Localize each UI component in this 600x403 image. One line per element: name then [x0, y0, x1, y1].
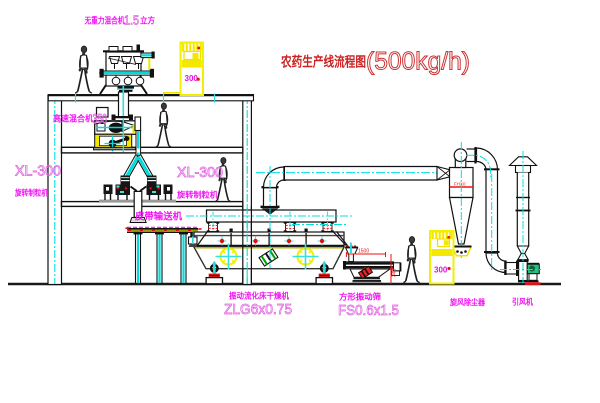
svg-text:XL-300: XL-300: [177, 165, 223, 181]
svg-text:高速混合机: 高速混合机: [53, 114, 93, 124]
svg-text:345: 345: [392, 268, 398, 277]
svg-text:引风机: 引风机: [512, 297, 533, 307]
svg-text:300: 300: [185, 74, 199, 83]
svg-text:方形振动筛: 方形振动筛: [339, 292, 381, 302]
svg-text:XL-300: XL-300: [15, 164, 61, 180]
svg-text:振动流化床干燥机: 振动流化床干燥机: [229, 291, 289, 301]
svg-text:皮带输送机: 皮带输送机: [134, 211, 182, 223]
svg-text:(500kg/h): (500kg/h): [366, 48, 470, 76]
svg-text:立方: 立方: [140, 16, 155, 26]
svg-text:1500: 1500: [358, 249, 369, 255]
svg-text:300: 300: [434, 266, 448, 275]
svg-text:1.5: 1.5: [124, 13, 139, 28]
svg-text:FHX0: FHX0: [454, 182, 466, 187]
svg-text:旋风除尘器: 旋风除尘器: [449, 297, 486, 307]
svg-text:ZLG6x0.75: ZLG6x0.75: [224, 301, 292, 318]
svg-text:旋转制粒机: 旋转制粒机: [176, 190, 218, 200]
svg-text:350: 350: [93, 111, 108, 127]
svg-text:FS0.6x1.5: FS0.6x1.5: [338, 302, 399, 319]
svg-text:无重力混合机: 无重力混合机: [84, 16, 125, 26]
svg-text:农药生产线流程图: 农药生产线流程图: [280, 54, 366, 70]
svg-text:旋转制粒机: 旋转制粒机: [14, 188, 48, 198]
